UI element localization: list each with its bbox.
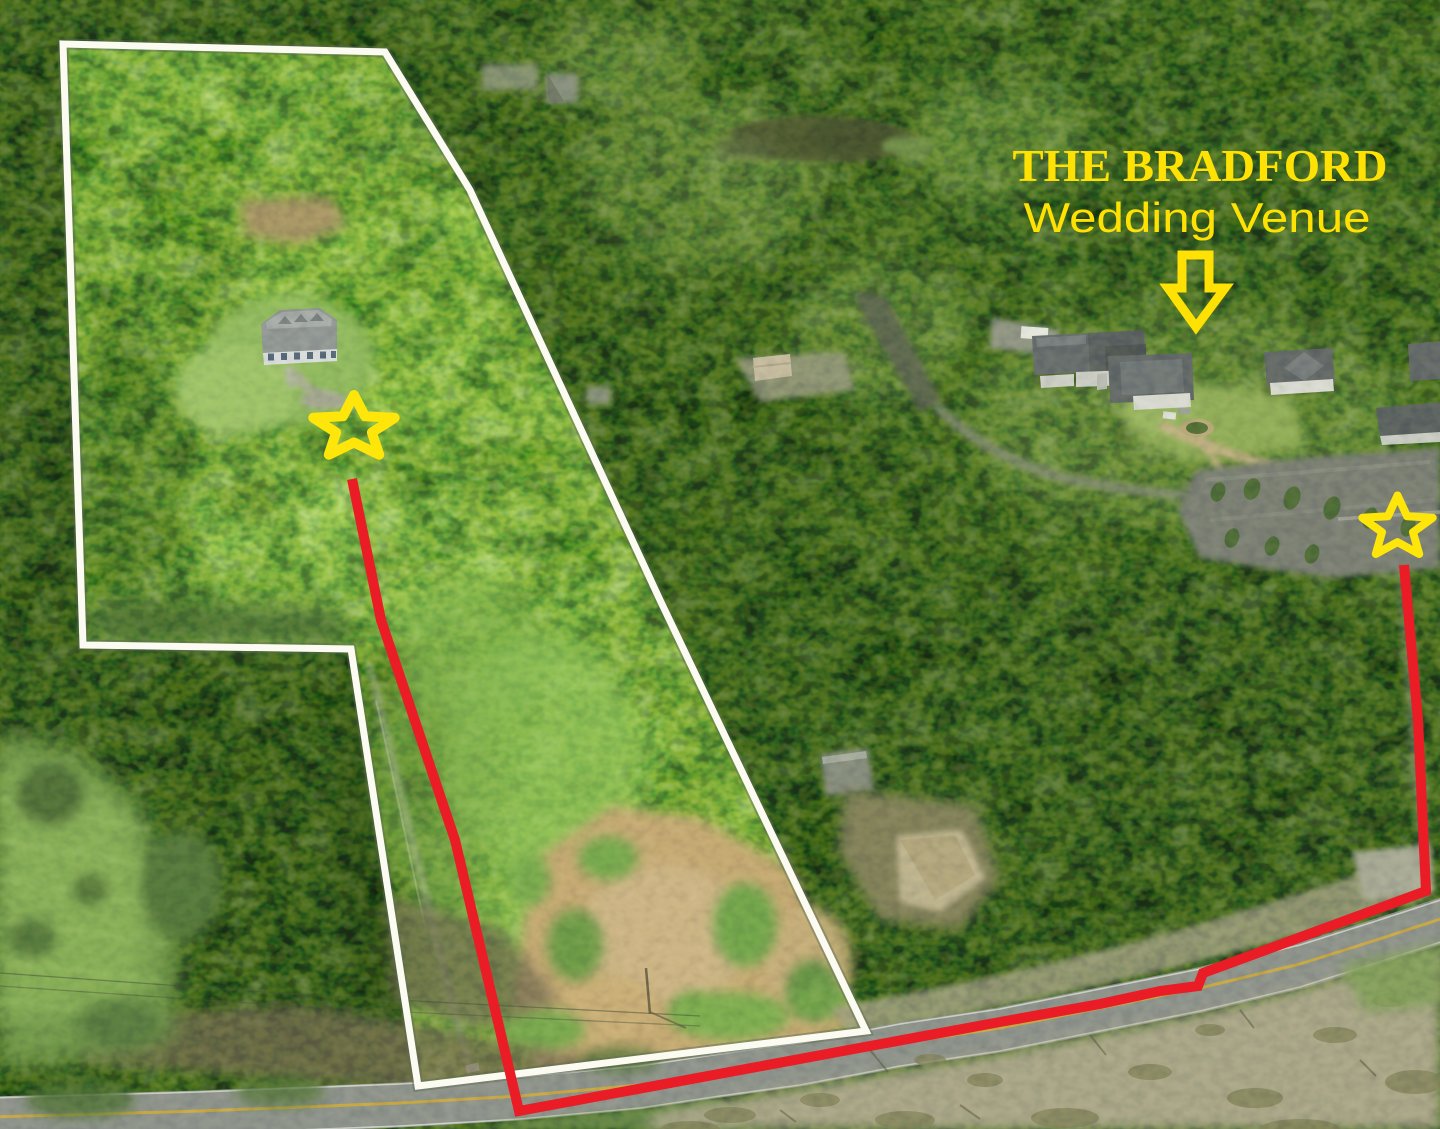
svg-text:Wedding Venue: Wedding Venue bbox=[1024, 194, 1371, 241]
svg-text:THE BRADFORD: THE BRADFORD bbox=[1013, 140, 1388, 191]
